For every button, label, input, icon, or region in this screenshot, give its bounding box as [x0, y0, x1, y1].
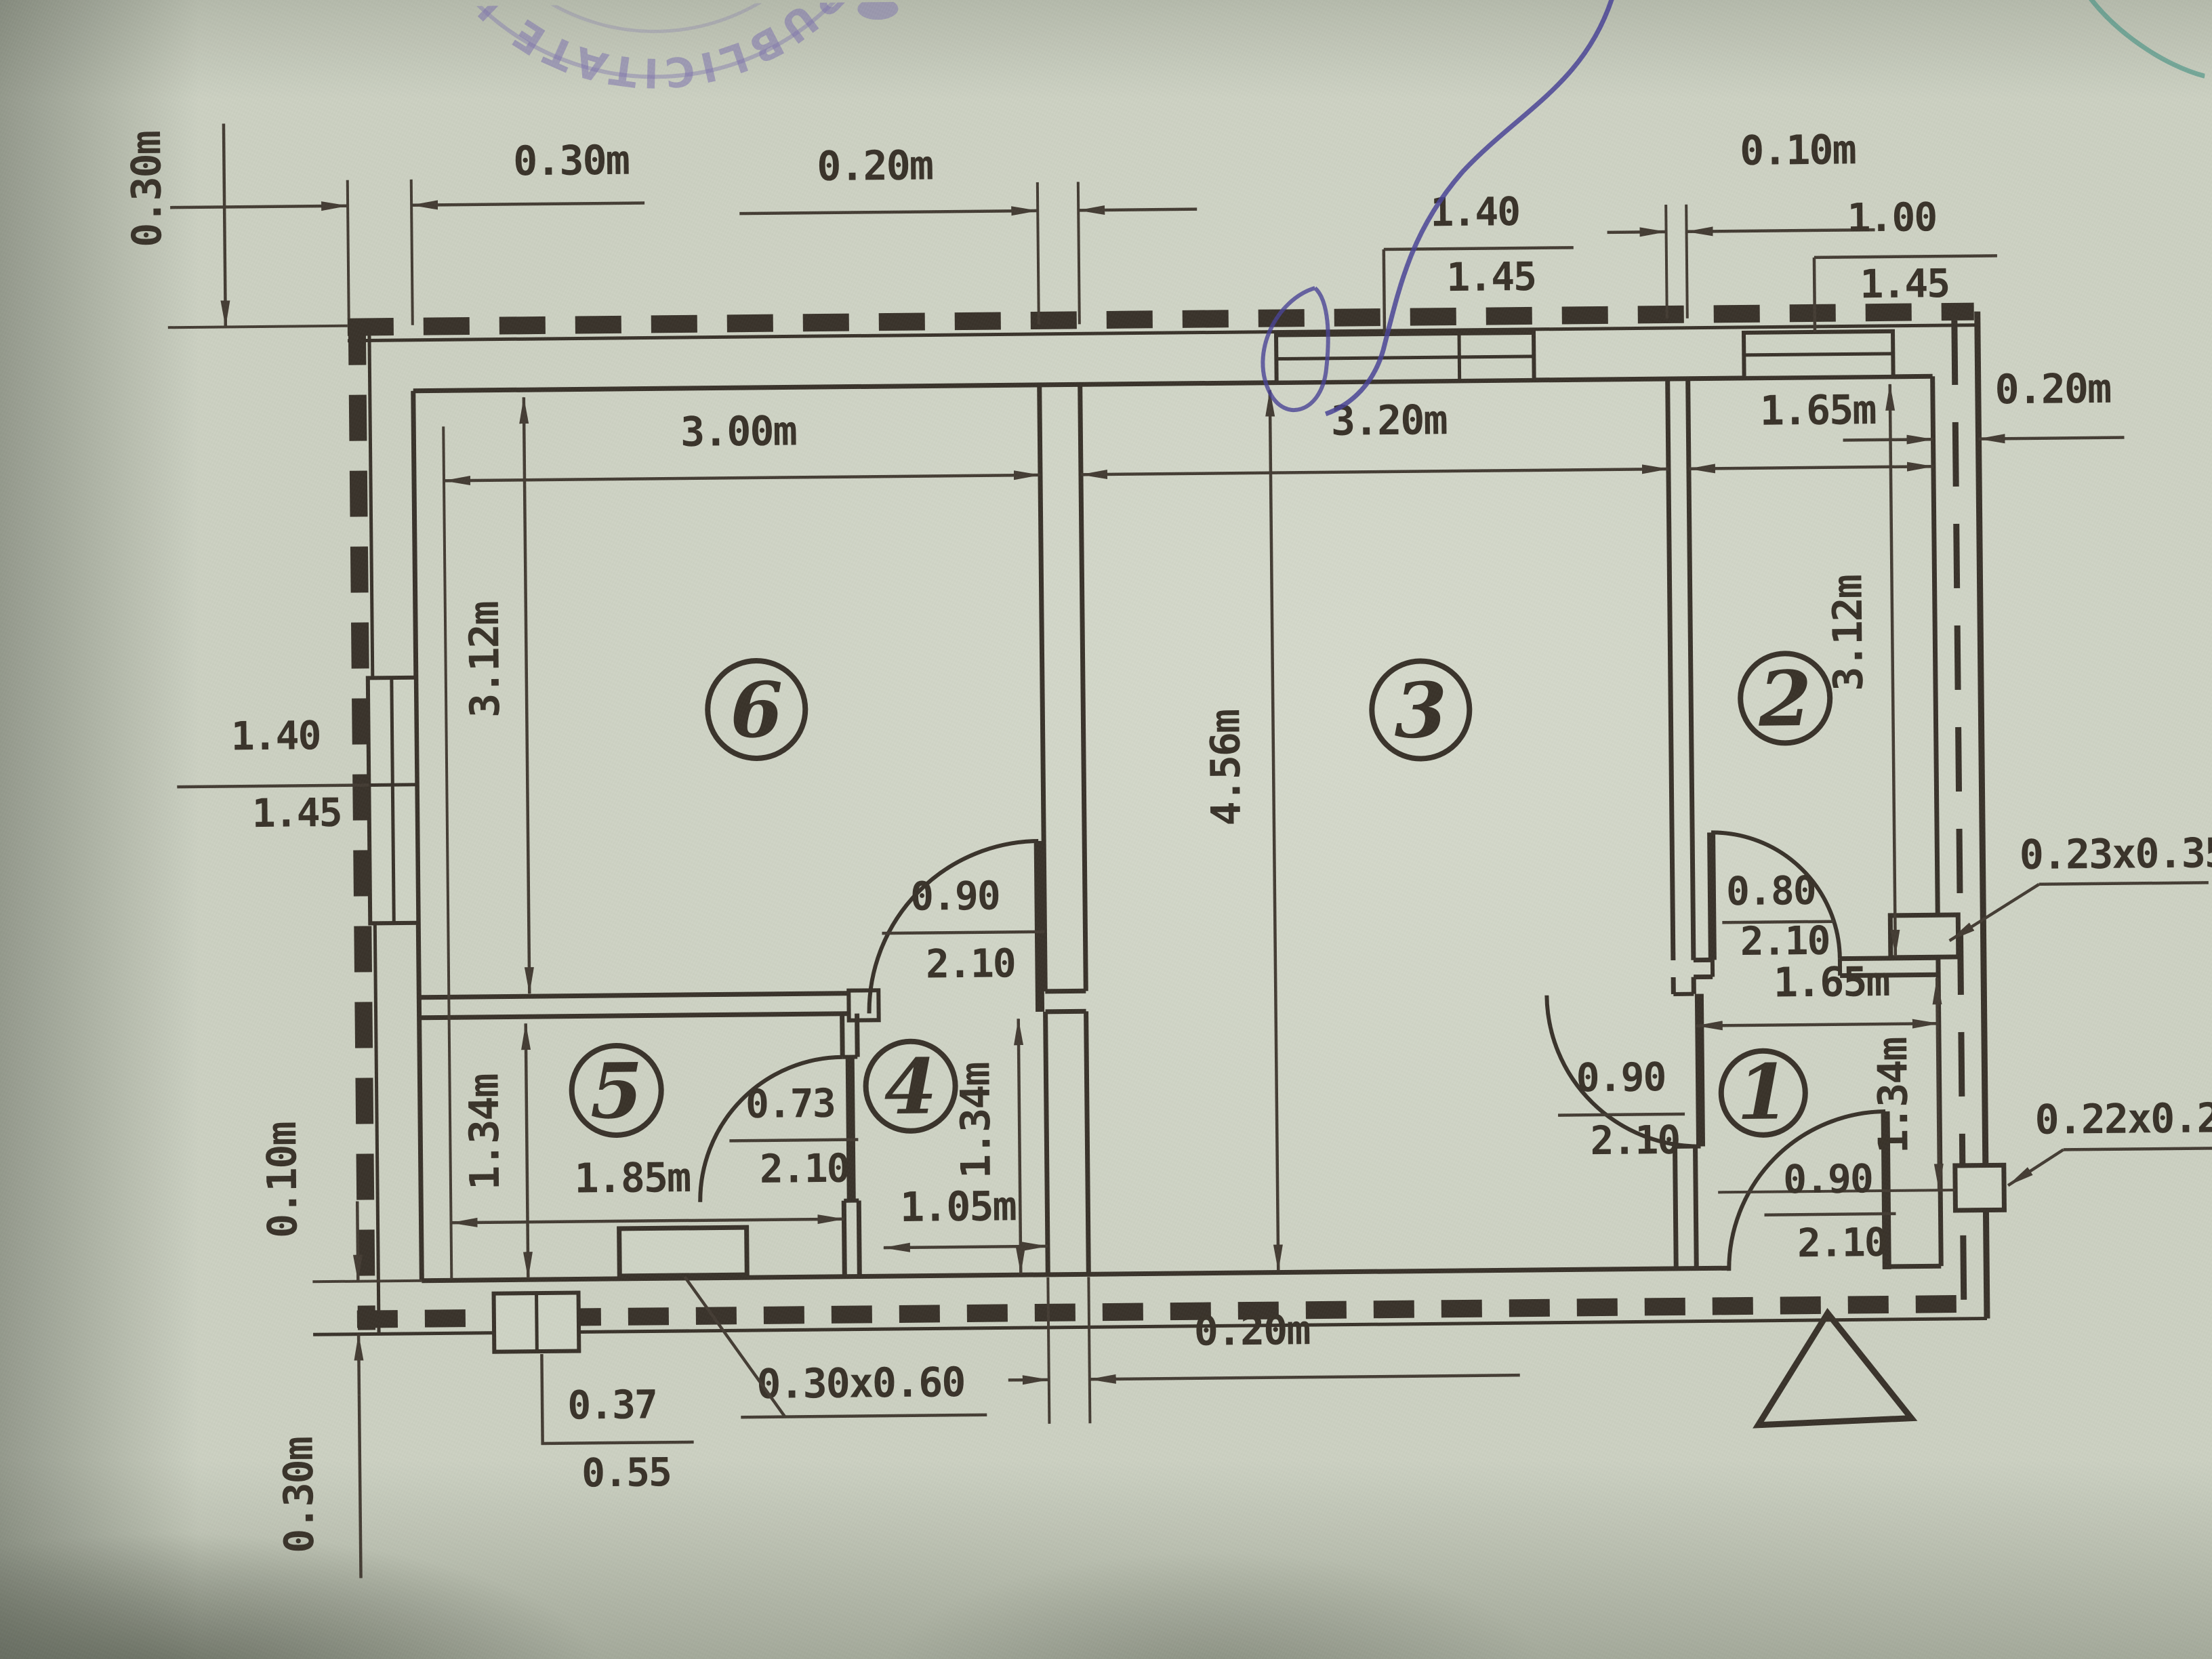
door-den: 2.10 [1797, 1219, 1887, 1266]
stove-label-text: 0.30x0.60 [756, 1359, 965, 1408]
door-leaf-room6-room4 [1038, 841, 1040, 1012]
door-num: 0.90 [1576, 1054, 1665, 1101]
dim-label: 3.12m [461, 602, 510, 718]
room-number: 6 [730, 666, 783, 756]
dim-label: 1.34m [951, 1063, 1000, 1179]
door-den: 2.10 [760, 1145, 849, 1192]
plan-tilt-wrapper: SI PUBLICITATE IMO [0, 0, 2212, 1659]
window-num: 1.00 [1847, 194, 1936, 241]
dim-room1-width: 1.65m [1696, 958, 1939, 1025]
dim-room6-height: 3.12m [459, 397, 529, 994]
dim-label: 0.30m [123, 131, 171, 247]
left-wall-dashed [357, 319, 367, 1330]
room-number: 1 [1736, 1048, 1790, 1137]
room-4: 4 [865, 1041, 956, 1132]
door-den: 2.10 [926, 940, 1015, 987]
dim-room3-height: 4.56m [1199, 390, 1278, 1272]
flue-label: 0.23x0.35 [2020, 829, 2212, 879]
top-wall-dashed [348, 312, 1974, 327]
dim-label: 0.30m [275, 1437, 324, 1553]
room-number: 3 [1394, 666, 1448, 756]
dim-label: 1.34m [460, 1074, 509, 1190]
dim-label: 1.65m [1774, 958, 1889, 1007]
door-label-room6-room4: 0.90 2.10 [882, 872, 1046, 987]
dim-room6-width: 3.00m [443, 405, 1040, 480]
door-leaf-room5-room4 [850, 1057, 851, 1201]
room-number: 4 [884, 1042, 937, 1132]
dim-room2-height: 3.12m [1822, 384, 1896, 957]
window-den: 0.55 [581, 1449, 671, 1496]
green-marker-stroke [2085, 0, 2205, 77]
dim-room2-width: 1.65m [1688, 386, 1933, 468]
dim-room4-height: 1.34m [951, 1019, 1021, 1274]
window-den: 1.45 [1860, 260, 1949, 307]
room-3: 3 [1372, 661, 1470, 759]
dim-label: 0.20m [1994, 365, 2110, 414]
dim-label: 1.05m [900, 1183, 1016, 1231]
door-num: 0.90 [910, 873, 1000, 920]
dim-room4-width: 1.05m [883, 1183, 1048, 1248]
dim-label: 4.56m [1202, 710, 1250, 826]
extension-lines [167, 165, 1958, 1432]
dim-bottom-wall-inner: 0.10m [258, 1122, 359, 1396]
dim-left-wall-thickness: 0.30m [169, 136, 644, 207]
dim-top-left-wall-v: 0.30m [123, 123, 226, 327]
door-label-room5-room4: 0.73 2.10 [729, 1080, 859, 1193]
door-den: 2.10 [1740, 918, 1829, 964]
window-label-left: 1.40 1.45 [176, 712, 369, 837]
dim-label: 3.12m [1824, 575, 1872, 691]
room-5: 5 [571, 1045, 661, 1136]
door-den: 2.10 [1590, 1117, 1679, 1164]
dim-label: 3.00m [680, 407, 796, 456]
room-number: 5 [590, 1047, 643, 1136]
dim-label: 0.30m [513, 137, 629, 186]
dim-room1-height: 1.34m [1868, 978, 1939, 1191]
door-arc-room6-room4 [867, 841, 1040, 1013]
door-label-room2: 0.80 2.10 [1722, 867, 1835, 965]
dim-label: 0.10m [258, 1122, 307, 1238]
door-num: 0.80 [1726, 867, 1816, 914]
door-label-entrance: 0.90 2.10 [1764, 1155, 1897, 1267]
dim-bottom-wall-outer: 0.30m [274, 1395, 361, 1579]
room-6: 6 [708, 660, 806, 758]
window-num: 1.40 [230, 712, 320, 759]
flue-label-tiny: 0.22x0.22 [2007, 1094, 2212, 1185]
dim-partition-32-top: 0.10m [1606, 126, 1875, 232]
walls [304, 304, 1987, 1335]
window-den: 1.45 [252, 790, 342, 836]
svg-text:SI PUBLICITATE IMO: SI PUBLICITATE IMO [0, 0, 882, 103]
floor-plan-drawing: SI PUBLICITATE IMO [0, 0, 2212, 1659]
room-number: 2 [1758, 655, 1812, 744]
dim-label: 0.20m [1193, 1307, 1309, 1355]
door-num: 0.73 [745, 1080, 835, 1127]
window-den: 1.45 [1446, 253, 1536, 300]
notary-stamp: SI PUBLICITATE IMO [0, 0, 909, 103]
dim-room5-height: 1.34m [460, 1023, 529, 1279]
floor-plan-photo: SI PUBLICITATE IMO [0, 0, 2212, 1659]
door-leaf-room2 [1711, 832, 1713, 960]
stove-rect [619, 1227, 747, 1276]
door-leaf-hall-room1 [1699, 994, 1700, 1147]
dim-room3-width: 3.20m [1080, 394, 1668, 474]
stove-label: 0.30x0.60 [684, 1274, 987, 1418]
dim-label: 1.65m [1759, 386, 1875, 435]
flue-label-small: 0.23x0.35 [1948, 829, 2212, 941]
dim-label: 0.20m [817, 142, 933, 190]
door-label-hall-room1: 0.90 2.10 [1557, 1054, 1685, 1164]
bottom-wall-dashed [357, 1304, 1984, 1319]
dim-label: 0.10m [1740, 126, 1856, 175]
dim-label: 1.34m [1869, 1038, 1918, 1153]
window-label-bottom-room5: 0.37 0.55 [541, 1353, 694, 1496]
dim-partition-63-top: 0.20m [739, 140, 1197, 213]
entrance-triangle [1757, 1313, 1912, 1425]
door-num: 0.90 [1783, 1155, 1872, 1202]
door-frame-stub [848, 990, 878, 1020]
flue-label: 0.22x0.22 [2034, 1094, 2212, 1144]
room-1: 1 [1721, 1048, 1805, 1137]
room-2: 2 [1740, 653, 1830, 744]
flue-rect-small [1890, 915, 1959, 958]
dim-label: 1.85m [574, 1154, 690, 1203]
flue-rect-tiny [1955, 1165, 2005, 1210]
window-num: 0.37 [567, 1381, 657, 1428]
stamp-ink-blob [857, 0, 898, 20]
stamp-ring-text: SI PUBLICITATE IMO [0, 0, 882, 103]
